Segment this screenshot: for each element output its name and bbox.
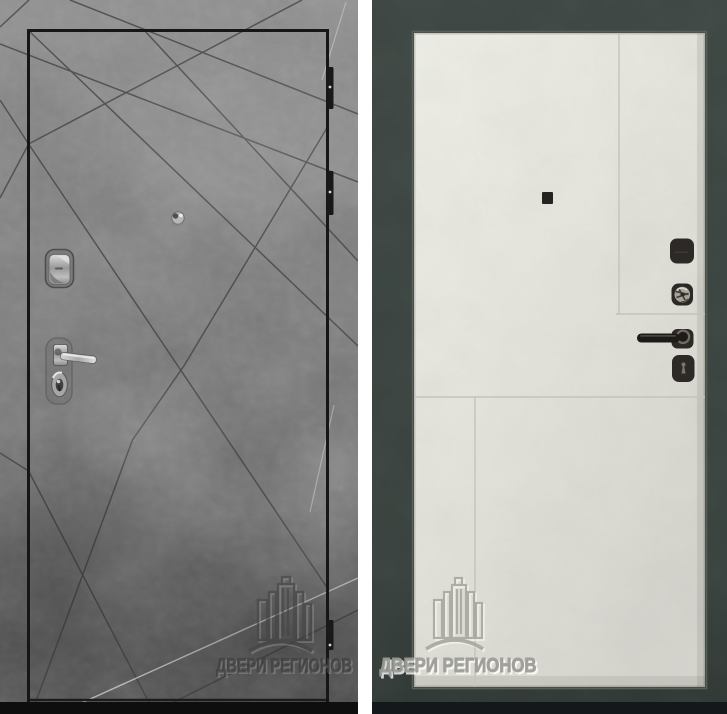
svg-text:ДВЕРИ РЕГИОНОВ: ДВЕРИ РЕГИОНОВ: [216, 656, 352, 677]
svg-text:ДВЕРИ РЕГИОНОВ: ДВЕРИ РЕГИОНОВ: [380, 655, 537, 677]
